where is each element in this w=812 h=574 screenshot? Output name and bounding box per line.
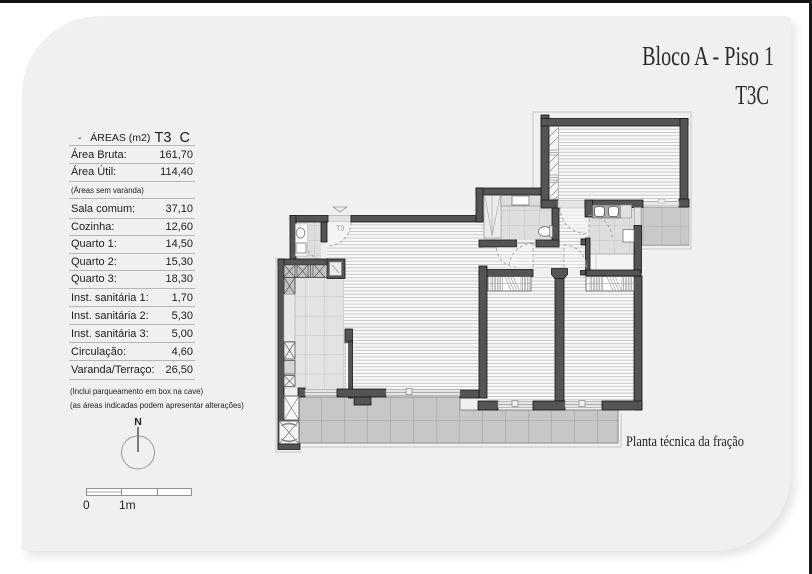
svg-text:T3: T3 xyxy=(336,226,344,233)
